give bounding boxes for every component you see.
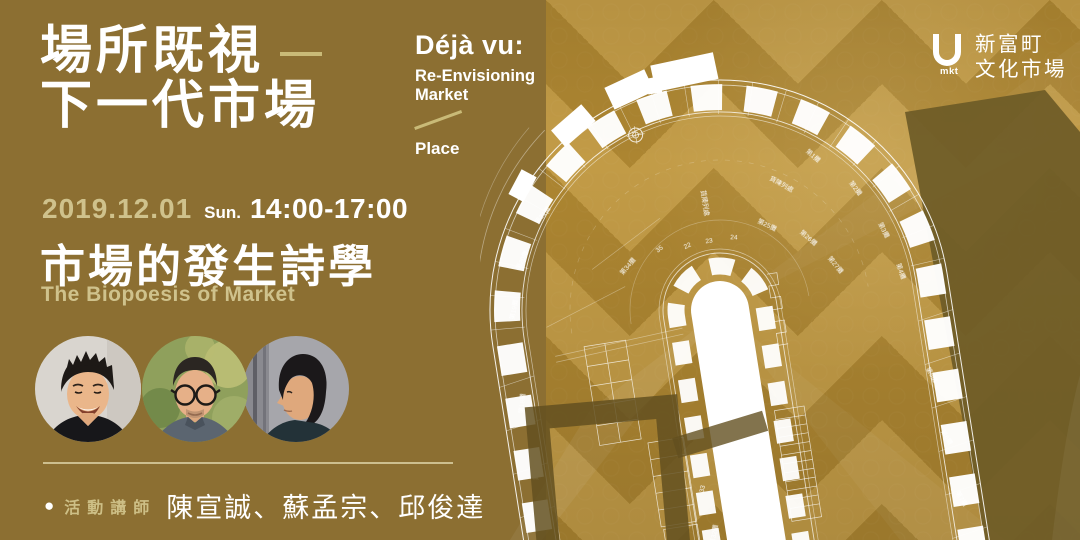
stall-label: 第2攤 bbox=[847, 179, 864, 198]
theme-slash-line bbox=[414, 110, 462, 129]
event-time: 14:00-17:00 bbox=[250, 193, 408, 225]
event-poster: 第1攤第2攤第3攤第4攤第5攤第6攤第7攤第17攤第18攤第19攤第20攤第21… bbox=[0, 0, 1080, 540]
umkt-logo: mkt 新富町 文化市場 bbox=[933, 30, 1067, 82]
stall-label: 第25攤 bbox=[756, 216, 779, 233]
title-line2: 下一代市場 bbox=[40, 79, 320, 134]
org-name-line2: 文化市場 bbox=[975, 57, 1067, 82]
stall-label: 貨陳列處 bbox=[768, 174, 796, 195]
avatar-speaker-1 bbox=[35, 336, 141, 442]
org-name-line1: 新富町 bbox=[975, 32, 1067, 57]
speaker-avatars bbox=[35, 336, 349, 442]
title-dash-line bbox=[280, 52, 322, 56]
stall-label: 33 bbox=[699, 484, 707, 493]
theme-subline2: Market bbox=[415, 86, 535, 105]
stall-label: 22 bbox=[683, 241, 693, 250]
divider-line bbox=[43, 462, 453, 464]
event-weekday: Sun. bbox=[204, 203, 241, 223]
mkt-label: mkt bbox=[940, 66, 958, 77]
stall-label: 第27攤 bbox=[826, 254, 846, 276]
shadow-polygon bbox=[905, 90, 1080, 540]
stall-label: 24 bbox=[730, 234, 738, 241]
avatar-speaker-2 bbox=[142, 336, 248, 442]
stall-label: 23 bbox=[705, 237, 714, 245]
organization-name: 新富町 文化市場 bbox=[975, 32, 1067, 82]
theme-subline1: Re-Envisioning bbox=[415, 67, 535, 86]
event-datetime: 2019.12.01 Sun. 14:00-17:00 bbox=[42, 193, 408, 225]
theme-heading: Déjà vu: bbox=[415, 30, 535, 61]
poster-title: 場所既視 下一代市場 bbox=[40, 24, 322, 134]
stall-label: 貨陳列處 bbox=[699, 189, 712, 217]
stall-label: 第4攤 bbox=[894, 262, 908, 281]
avatar-speaker-3 bbox=[243, 336, 349, 442]
stall-label: 第1攤 bbox=[804, 147, 823, 165]
speakers-row: ● 活動講師 陳宣誠、蘇孟宗、邱俊達 bbox=[44, 486, 485, 525]
bullet-icon: ● bbox=[44, 497, 54, 514]
stall-label: 35 bbox=[655, 244, 665, 254]
theme-block: Déjà vu: Re-Envisioning Market Place bbox=[415, 30, 535, 159]
speakers-label: 活動講師 bbox=[64, 494, 156, 518]
event-date: 2019.12.01 bbox=[42, 193, 192, 225]
title-line1: 場所既視 bbox=[40, 24, 264, 79]
u-glyph bbox=[933, 34, 961, 66]
umkt-logo-icon: mkt bbox=[933, 34, 961, 70]
speakers-names: 陳宣誠、蘇孟宗、邱俊達 bbox=[166, 486, 485, 525]
theme-place: Place bbox=[415, 139, 535, 159]
event-title-en: The Biopoesis of Market bbox=[41, 283, 295, 307]
stall-label: 第3攤 bbox=[876, 221, 892, 240]
stall-label: 第34攤 bbox=[617, 255, 637, 277]
